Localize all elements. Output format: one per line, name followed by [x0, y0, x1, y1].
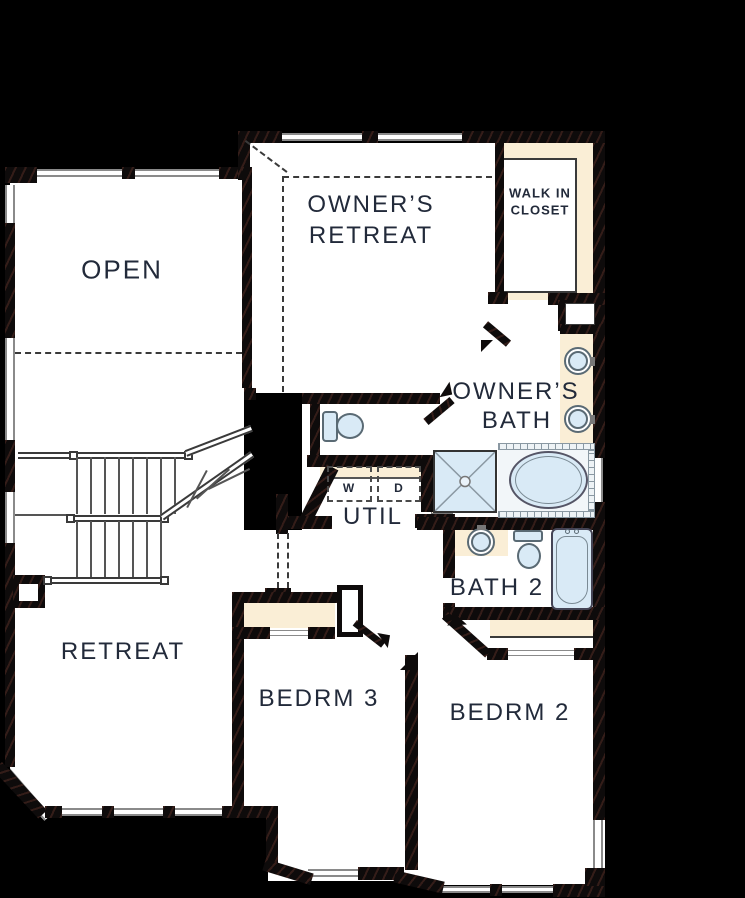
dryer-label: D — [394, 481, 404, 495]
stair-tread — [118, 457, 120, 514]
closet-opening — [508, 650, 574, 656]
wall — [122, 167, 135, 179]
stair-rail — [45, 577, 168, 584]
floor-plan: OPEN OWNER’S RETREAT WALK IN CLOSET OWNE… — [0, 0, 745, 898]
wall — [45, 806, 62, 818]
room-label-bedrm3: BEDRM 3 — [259, 685, 380, 713]
room-label-bedrm2: BEDRM 2 — [450, 699, 571, 727]
closet-opening — [270, 630, 308, 636]
bedrm3-closet-shelf — [238, 603, 335, 628]
stair-tread — [90, 521, 92, 577]
stair-post — [43, 576, 52, 585]
stair-tread — [146, 521, 148, 577]
room-label-owners-bath-1: OWNER’S — [452, 378, 579, 406]
window — [440, 886, 490, 893]
wall — [574, 648, 596, 660]
stair-tread — [160, 457, 162, 514]
stair-tread — [90, 457, 92, 514]
wall — [308, 627, 335, 639]
tub-faucet — [574, 529, 579, 534]
window — [5, 492, 15, 543]
room-label-retreat: RETREAT — [61, 638, 185, 666]
window — [593, 820, 603, 868]
stair-tread — [118, 521, 120, 577]
shower-glass-lines — [435, 452, 495, 511]
stair-tread — [132, 457, 134, 514]
wall — [276, 494, 288, 534]
exterior-patch-left-step — [230, 818, 268, 888]
window — [281, 133, 362, 141]
faucet — [477, 525, 486, 530]
window — [5, 185, 15, 223]
wall-end-cap — [400, 652, 418, 670]
window — [37, 169, 122, 177]
stair-tread — [104, 521, 106, 577]
stair-tread — [160, 521, 162, 577]
room-label-walk-in-closet-2: CLOSET — [511, 203, 570, 218]
wall — [244, 388, 256, 400]
tub-tile-edge — [588, 450, 595, 511]
opening-dash — [287, 533, 289, 588]
room-label-bath2: BATH 2 — [450, 574, 544, 602]
tub-faucet — [565, 529, 570, 534]
wall — [443, 530, 455, 578]
room-label-walk-in-closet-1: WALK IN — [509, 186, 571, 201]
wall — [163, 806, 175, 818]
wall-chase-inner — [19, 584, 38, 601]
wall — [488, 292, 508, 304]
toilet-bowl — [336, 413, 364, 439]
bathtub2-inner — [556, 536, 588, 604]
wall — [405, 655, 418, 870]
wall — [310, 404, 320, 458]
sink-basin — [471, 532, 491, 552]
wall — [5, 167, 37, 183]
door-arrow — [375, 633, 390, 648]
ceiling-break-retreat-h — [283, 176, 492, 178]
bedrm2-closet-shelf — [490, 620, 597, 638]
room-label-owners-retreat-1: OWNER’S — [307, 191, 434, 219]
wall — [242, 167, 252, 388]
wall — [560, 324, 605, 334]
wall — [362, 131, 378, 143]
room-label-util: UTIL — [343, 503, 403, 531]
ceiling-break-retreat-v — [282, 176, 284, 392]
ceiling-break-open — [15, 352, 242, 354]
stair-landing-line — [15, 514, 68, 516]
stair-tread — [76, 457, 78, 514]
wall — [222, 806, 278, 818]
window — [5, 338, 15, 440]
room-label-owners-bath-2: BATH — [482, 407, 552, 435]
bathtub-oval-inner — [515, 456, 582, 504]
toilet-tank — [513, 530, 543, 542]
window — [378, 133, 463, 141]
room-label-open: OPEN — [81, 255, 163, 286]
stair-tread — [132, 521, 134, 577]
window — [308, 869, 360, 877]
sink-basin — [568, 409, 588, 429]
walk-in-closet-inner — [502, 158, 577, 293]
shower — [433, 450, 497, 513]
window — [502, 886, 553, 893]
wall — [102, 806, 114, 818]
wall — [302, 393, 440, 404]
opening-dash — [277, 533, 279, 588]
toilet-bowl — [517, 543, 541, 569]
faucet — [590, 415, 595, 424]
stair-post — [160, 576, 169, 585]
wall — [5, 440, 15, 492]
wall — [421, 455, 433, 512]
faucet — [590, 357, 595, 366]
door-arrow — [437, 382, 452, 397]
wall — [5, 223, 15, 338]
stair-post — [66, 514, 75, 523]
wall — [490, 884, 502, 896]
wall — [462, 131, 605, 143]
tub-tile-edge — [498, 511, 595, 518]
washer-label: W — [343, 481, 355, 495]
stair-tread — [104, 457, 106, 514]
door-arrow — [481, 340, 493, 352]
linen-cabinet — [565, 303, 595, 325]
window — [134, 169, 220, 177]
wall — [495, 143, 504, 293]
window — [62, 808, 102, 816]
stair-tread — [146, 457, 148, 514]
wall — [232, 592, 244, 810]
stair-tread — [76, 521, 78, 577]
window — [175, 808, 222, 816]
wall — [232, 627, 270, 639]
tub-tile-edge — [498, 443, 595, 450]
wall — [593, 608, 605, 820]
window — [114, 808, 163, 816]
wall — [585, 868, 605, 886]
room-label-owners-retreat-2: RETREAT — [309, 222, 433, 250]
sink-basin — [568, 351, 588, 371]
wall — [593, 143, 605, 302]
